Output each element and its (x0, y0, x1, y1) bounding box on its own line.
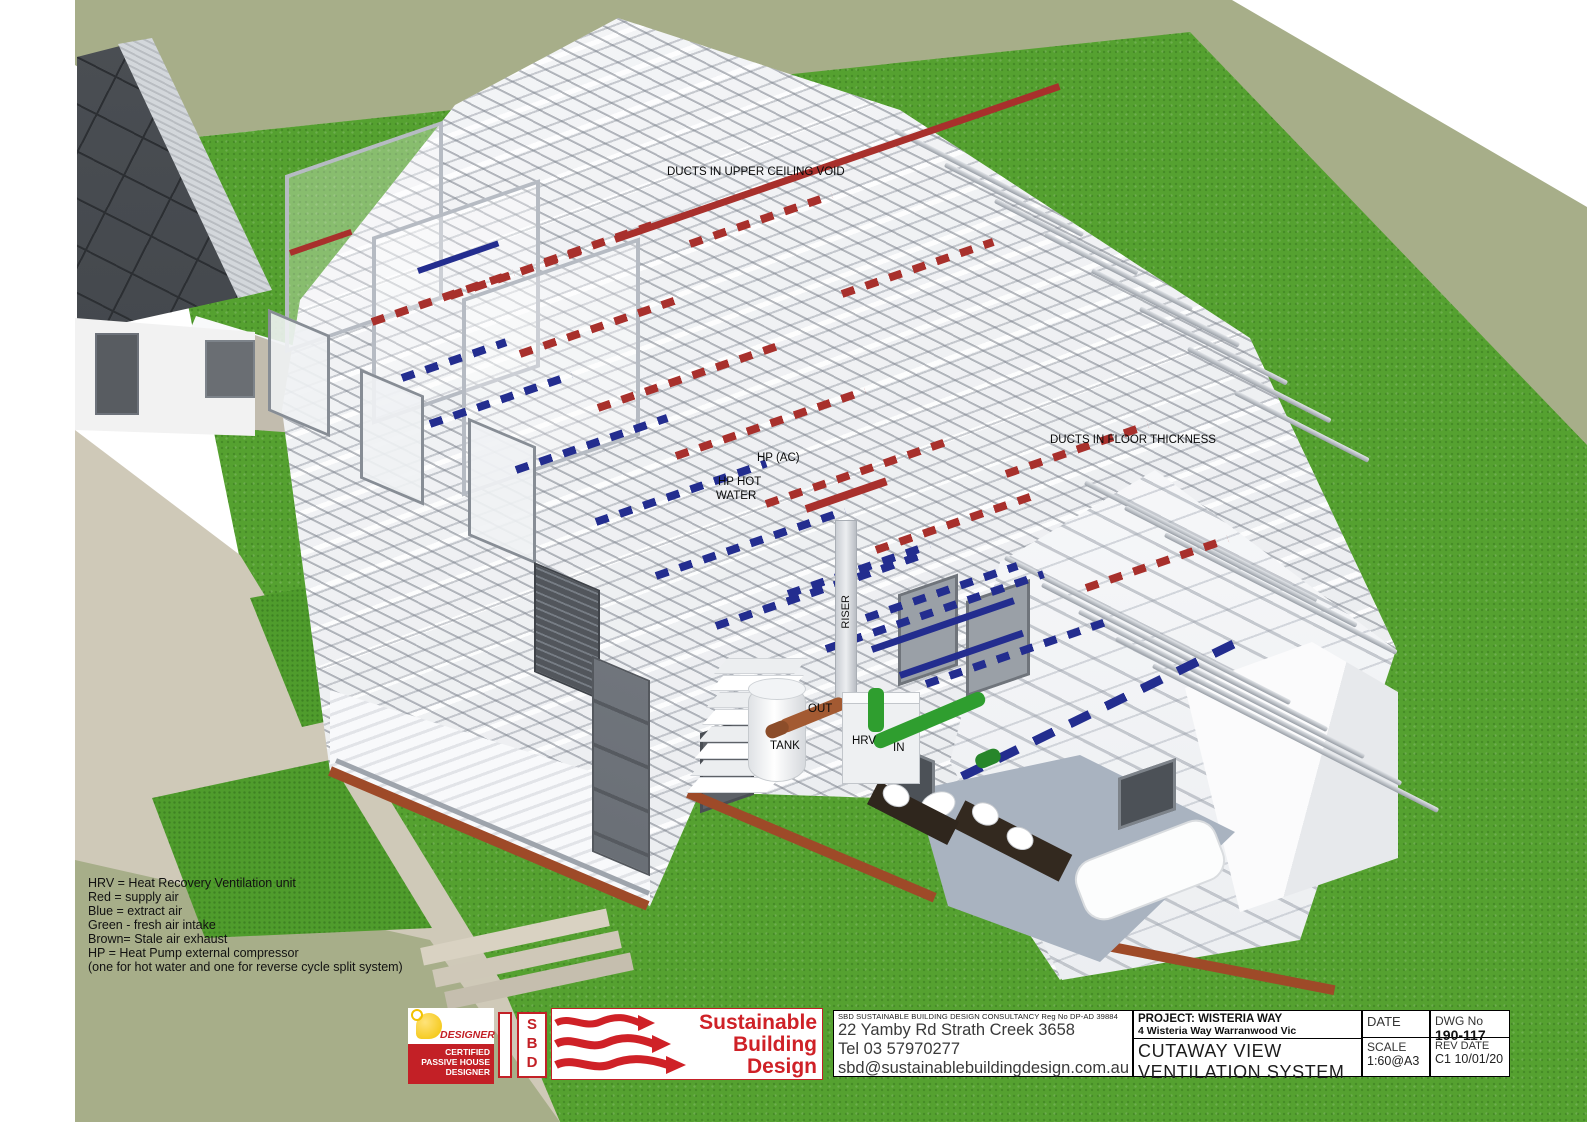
legend-line: Brown= Stale air exhaust (88, 932, 403, 946)
company-name: Sustainable Building Design (697, 1010, 822, 1078)
annotation-out: OUT (808, 703, 832, 716)
email-line: sbd@sustainablebuildingdesign.com.au (838, 1059, 1128, 1078)
phone-line: Tel 03 57970277 (838, 1040, 1128, 1059)
badge-line: PASSIVE HOUSE (408, 1057, 490, 1067)
annotation-hrv: HRV (852, 735, 876, 748)
date-label: DATE (1367, 1014, 1401, 1029)
scale-label: SCALE (1367, 1040, 1425, 1054)
tank-lid (748, 678, 806, 700)
drawing-sheet: RISER DUCTS IN UPPER CEILING VOID DUCTS … (0, 0, 1587, 1122)
legend-line: Green - fresh air intake (88, 918, 403, 932)
house-window-2 (205, 340, 255, 398)
project-box: PROJECT: WISTERIA WAY 4 Wisteria Way War… (1133, 1010, 1362, 1077)
project-address: 4 Wisteria Way Warranwood Vic (1138, 1025, 1357, 1037)
legend-line: (one for hot water and one for reverse c… (88, 960, 403, 974)
registration-line: SBD SUSTAINABLE BUILDING DESIGN CONSULTA… (838, 1012, 1128, 1021)
date-scale-box: DATE SCALE 1:60@A3 (1362, 1010, 1430, 1077)
company-name-line: Building (697, 1034, 817, 1056)
sbd-monogram: S B D (517, 1012, 547, 1078)
riser-label: RISER (840, 595, 852, 629)
legend-line: Blue = extract air (88, 904, 403, 918)
address-line: 22 Yamby Rd Strath Creek 3658 (838, 1021, 1128, 1040)
company-name-line: Design (697, 1056, 817, 1078)
fresh-air-duct-vertical (868, 688, 884, 732)
legend-line: HP = Heat Pump external compressor (88, 946, 403, 960)
passive-house-badge: DESIGNER CERTIFIED PASSIVE HOUSE DESIGNE… (408, 1008, 494, 1084)
sbd-letter: B (519, 1035, 545, 1054)
stair-tread (714, 658, 808, 674)
consultancy-address-box: SBD SUSTAINABLE BUILDING DESIGN CONSULTA… (833, 1010, 1133, 1077)
annotation-ducts-upper: DUCTS IN UPPER CEILING VOID (667, 166, 845, 179)
scale-value: 1:60@A3 (1367, 1054, 1425, 1068)
company-logo-box: Sustainable Building Design (551, 1008, 823, 1080)
project-label: PROJECT: WISTERIA WAY (1138, 1013, 1357, 1025)
sbd-letter: D (519, 1054, 545, 1073)
badge-yellow-ring (411, 1009, 423, 1021)
badge-line: DESIGNER (408, 1067, 490, 1077)
company-name-line: Sustainable (697, 1012, 817, 1034)
tall-door-panel (592, 656, 650, 877)
annotation-tank: TANK (770, 740, 800, 753)
annotation-ducts-floor: DUCTS IN FLOOR THICKNESS (1050, 434, 1216, 447)
rev-value: C1 10/01/20 (1435, 1052, 1505, 1066)
annotation-hp-ac: HP (AC) (757, 452, 800, 465)
legend: HRV = Heat Recovery Ventilation unit Red… (88, 876, 403, 974)
legend-line: HRV = Heat Recovery Ventilation unit (88, 876, 403, 890)
badge-line: CERTIFIED (408, 1047, 490, 1057)
annotation-hp-hot-water-1: HP HOT (718, 476, 761, 489)
riser-duct: RISER (835, 520, 857, 704)
annotation-in: IN (893, 742, 905, 755)
sbd-arrows-logo (552, 1011, 697, 1077)
legend-line: Red = supply air (88, 890, 403, 904)
sbd-letter: S (519, 1016, 545, 1035)
rev-label: REV DATE (1435, 1040, 1505, 1052)
drawing-title-line-1: CUTAWAY VIEW (1138, 1041, 1357, 1062)
drawing-title-line-2: VENTILATION SYSTEM (1138, 1062, 1357, 1083)
annotation-hp-hot-water-2: WATER (716, 490, 756, 503)
dwg-label: DWG No (1435, 1014, 1483, 1028)
dwg-rev-box: DWG No 190-117 REV DATE C1 10/01/20 (1430, 1010, 1510, 1077)
project-header: PROJECT: WISTERIA WAY 4 Wisteria Way War… (1134, 1011, 1361, 1039)
logo-divider-box (498, 1012, 512, 1078)
house-window (95, 333, 139, 415)
badge-certified-block: CERTIFIED PASSIVE HOUSE DESIGNER (408, 1044, 494, 1084)
badge-designer-label: DESIGNER (440, 1029, 495, 1041)
